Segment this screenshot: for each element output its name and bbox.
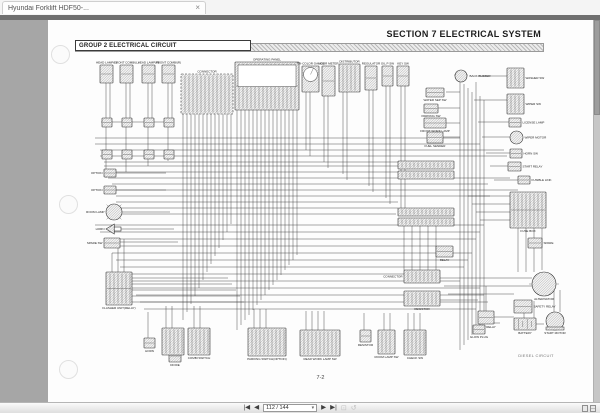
snapshot-icon: ⊡ [341, 405, 347, 412]
svg-text:HOUR METER: HOUR METER [318, 62, 339, 66]
svg-text:PARKING SWITCH(OPTION): PARKING SWITCH(OPTION) [247, 357, 286, 361]
svg-text:START MOTOR: START MOTOR [544, 331, 566, 335]
scrollbar-thumb[interactable] [594, 20, 600, 115]
tab-bar: Hyundai Forklift HDF50-... × [0, 0, 600, 16]
svg-text:BATTERY: BATTERY [518, 331, 532, 335]
svg-text:FRONT COMBI(R): FRONT COMBI(R) [156, 61, 181, 65]
svg-text:OPTION: OPTION [91, 171, 103, 175]
svg-text:OPERATING PANEL: OPERATING PANEL [253, 58, 281, 62]
document-tab-title: Hyundai Forklift HDF50-... [8, 5, 89, 12]
svg-text:WIPER MOTOR: WIPER MOTOR [525, 136, 548, 140]
svg-text:ALTERNATOR: ALTERNATOR [534, 297, 555, 301]
continuous-page-icon[interactable] [590, 405, 596, 412]
application-window: Hyundai Forklift HDF50-... × SECTION 7 E… [0, 0, 600, 413]
svg-text:WATER SEP SW: WATER SEP SW [424, 98, 447, 102]
svg-text:FUSE BOX: FUSE BOX [520, 229, 535, 233]
svg-text:REAR WORK LAMP SW: REAR WORK LAMP SW [303, 357, 336, 361]
svg-text:FLASHER UNIT(RELAY): FLASHER UNIT(RELAY) [102, 306, 135, 310]
single-page-icon[interactable] [582, 405, 588, 412]
svg-text:LICENSE LAMP: LICENSE LAMP [523, 121, 545, 125]
page-number: 7-2 [48, 375, 593, 381]
svg-text:FUSIBLE LINK: FUSIBLE LINK [532, 178, 552, 182]
svg-text:RESISTOR: RESISTOR [358, 343, 374, 347]
document-tab[interactable]: Hyundai Forklift HDF50-... × [2, 1, 206, 14]
close-icon[interactable]: × [195, 4, 200, 12]
svg-text:WASHER SW: WASHER SW [526, 76, 545, 80]
svg-text:SPARE: SPARE [544, 241, 554, 245]
svg-text:HORN SW: HORN SW [524, 152, 539, 156]
svg-text:OPTION: OPTION [91, 188, 103, 192]
svg-text:GLOW PLUG: GLOW PLUG [470, 335, 489, 339]
svg-text:ROOM LAMP SW: ROOM LAMP SW [375, 355, 399, 359]
svg-text:CHECK SW: CHECK SW [407, 356, 423, 360]
last-page-button[interactable]: ▶| [330, 405, 337, 412]
diagram-caption: DIESEL CIRCUIT [500, 353, 572, 358]
svg-text:ROOM LAMP: ROOM LAMP [86, 210, 104, 214]
svg-text:SPARE SW: SPARE SW [87, 241, 103, 245]
svg-text:DISTRIBUTOR: DISTRIBUTOR [339, 60, 360, 64]
svg-text:FRONT COMBI(L): FRONT COMBI(L) [114, 61, 139, 65]
svg-text:WIPER SW: WIPER SW [526, 102, 542, 106]
svg-text:COMBI SWITCH: COMBI SWITCH [188, 356, 211, 360]
svg-text:CONNECTOR: CONNECTOR [383, 275, 403, 279]
svg-text:REGULATOR: REGULATOR [362, 62, 381, 66]
svg-text:BACK BUZZER: BACK BUZZER [470, 74, 492, 78]
svg-text:SAFETY RELAY: SAFETY RELAY [534, 305, 556, 309]
svg-text:RELAY: RELAY [440, 258, 450, 262]
wiring-diagram: HEAD LAMP(L)FRONT COMBI(L)HEAD LAMP(R)FR… [48, 20, 593, 402]
svg-text:KEY SW: KEY SW [397, 62, 409, 66]
first-page-button[interactable]: |◀ [243, 405, 250, 412]
page-number-field[interactable]: ▾ [263, 404, 317, 412]
svg-text:DIODE: DIODE [170, 363, 180, 367]
navigation-toolbar: |◀ ◀ ▾ ▶ ▶| ⊡ ↺ [0, 402, 600, 413]
previous-page-button[interactable]: ◀ [254, 405, 259, 412]
svg-text:HORN: HORN [96, 227, 105, 231]
refresh-icon: ↺ [351, 405, 357, 412]
svg-text:HORN: HORN [145, 349, 154, 353]
page-layout-controls [582, 405, 596, 412]
svg-text:CONNECTOR: CONNECTOR [197, 70, 217, 74]
next-page-button[interactable]: ▶ [321, 405, 326, 412]
page-number-input[interactable] [266, 405, 306, 411]
vertical-scrollbar[interactable] [593, 20, 600, 402]
svg-text:OIL P SW: OIL P SW [381, 62, 394, 66]
svg-text:FUEL SENDER: FUEL SENDER [425, 144, 447, 148]
svg-text:START RELAY: START RELAY [523, 165, 543, 169]
pdf-page: SECTION 7 ELECTRICAL SYSTEM GROUP 2 ELEC… [48, 20, 593, 402]
chevron-down-icon[interactable]: ▾ [312, 405, 315, 411]
svg-text:RESISTOR: RESISTOR [414, 307, 430, 311]
svg-text:PARKING SW: PARKING SW [422, 114, 441, 118]
